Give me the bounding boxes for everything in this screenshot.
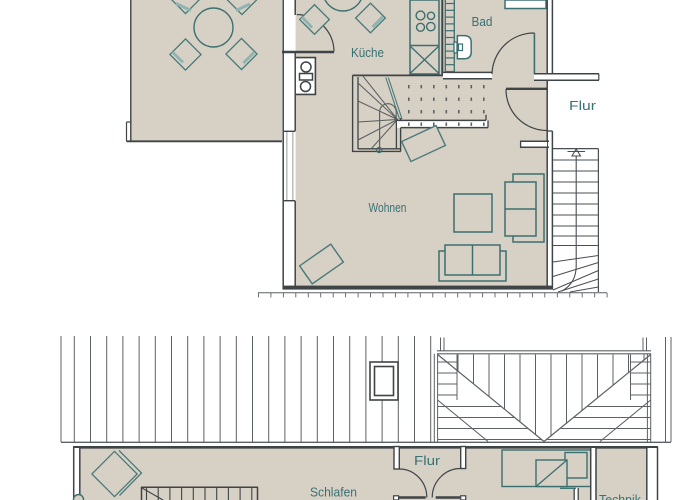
svg-text:Schlafen: Schlafen [310,485,357,500]
svg-text:Küche: Küche [351,45,384,60]
svg-text:Flur: Flur [569,98,597,113]
svg-text:Wohnen: Wohnen [369,200,407,215]
svg-text:Technik: Technik [599,492,641,500]
svg-text:Flur: Flur [414,454,440,468]
svg-text:Bad: Bad [472,14,493,29]
